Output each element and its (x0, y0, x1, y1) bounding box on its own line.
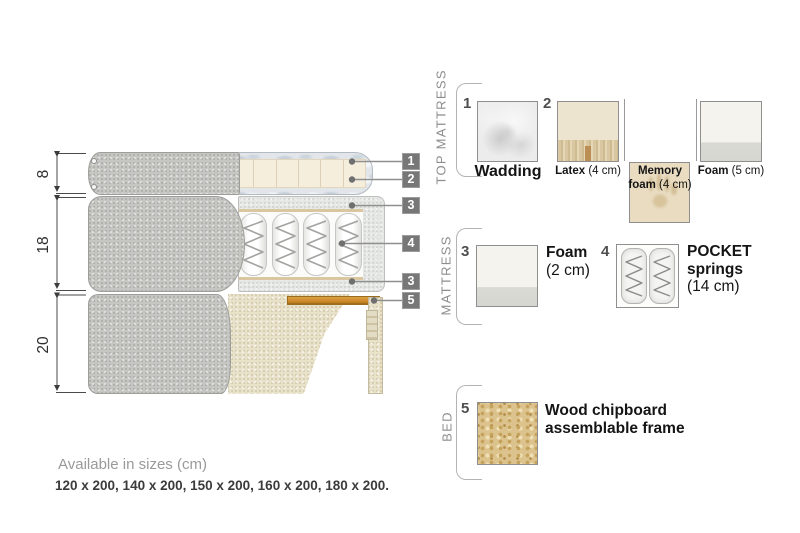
dimension-label-top-mattress: 8 (35, 159, 53, 189)
pocket-spring (649, 248, 675, 304)
latex-notch (585, 146, 591, 161)
legend-divider (624, 99, 625, 161)
legend-item-number-1: 1 (463, 95, 471, 112)
section-title-bed: BED (440, 407, 455, 447)
legend-item-number-5: 5 (461, 400, 469, 417)
foam-block (299, 160, 321, 187)
top-mattress-fabric-cover (88, 152, 240, 195)
callout-5: 5 (402, 292, 420, 309)
pocket-spring (272, 213, 299, 276)
foam-5cm-image (700, 101, 762, 162)
pocket-spring (303, 213, 330, 276)
bed-wood-slat (287, 296, 380, 305)
dimension-label-mattress: 18 (35, 230, 53, 260)
callout-2: 2 (402, 171, 420, 188)
foam-block (344, 160, 365, 187)
pocket-spring (335, 213, 362, 276)
foam-2cm-image (476, 245, 538, 307)
mattress-spring-section (239, 209, 363, 280)
bed-fabric-cover (88, 294, 231, 394)
section-title-top-mattress: TOP MATTRESS (434, 73, 449, 185)
pocket-springs-caption: POCKET springs (14 cm) (687, 243, 752, 296)
foam-5cm-caption: Foam (5 cm) (688, 165, 774, 179)
wadding-image (477, 101, 538, 162)
section-title-mattress: MATTRESS (439, 236, 454, 316)
legend-item-number-4: 4 (601, 243, 609, 260)
legend-divider (696, 99, 697, 161)
callout-4: 4 (402, 235, 420, 252)
callout-1: 1 (402, 153, 420, 170)
callout-3-bottom: 3 (402, 273, 420, 290)
foam-2cm-caption: Foam (2 cm) (546, 244, 590, 279)
pocket-springs-image (616, 244, 679, 308)
legend-item-number-2: 2 (543, 95, 551, 112)
mattress-fabric-cover (88, 196, 245, 292)
foam-block (277, 160, 299, 187)
available-sizes-title: Available in sizes (cm) (58, 456, 207, 473)
mattress-infographic: 8 18 20 1 2 3 4 3 5 TOP MATTRESS 1 Waddi… (0, 0, 800, 533)
pocket-spring (621, 248, 647, 304)
mattress-button (91, 184, 97, 190)
foam-block (321, 160, 343, 187)
bed-inner-fabric (228, 294, 350, 394)
legend-item-number-3: 3 (461, 243, 469, 260)
top-mattress-foam-blocks (231, 159, 366, 188)
available-sizes-list: 120 x 200, 140 x 200, 150 x 200, 160 x 2… (55, 478, 389, 493)
wood-chipboard-caption: Wood chipboard assemblable frame (545, 402, 685, 437)
mattress-button (91, 158, 97, 164)
callout-3-top: 3 (402, 197, 420, 214)
wadding-caption: Wadding (466, 163, 550, 181)
legend-section-top-mattress: TOP MATTRESS 1 Wadding 2 Latex (4 cm) Me… (0, 0, 800, 122)
latex-image (557, 101, 619, 162)
dimension-label-bed: 20 (35, 330, 53, 360)
bed-frame-bracket (366, 310, 378, 340)
wood-chipboard-image (477, 402, 538, 465)
foam-block (254, 160, 276, 187)
